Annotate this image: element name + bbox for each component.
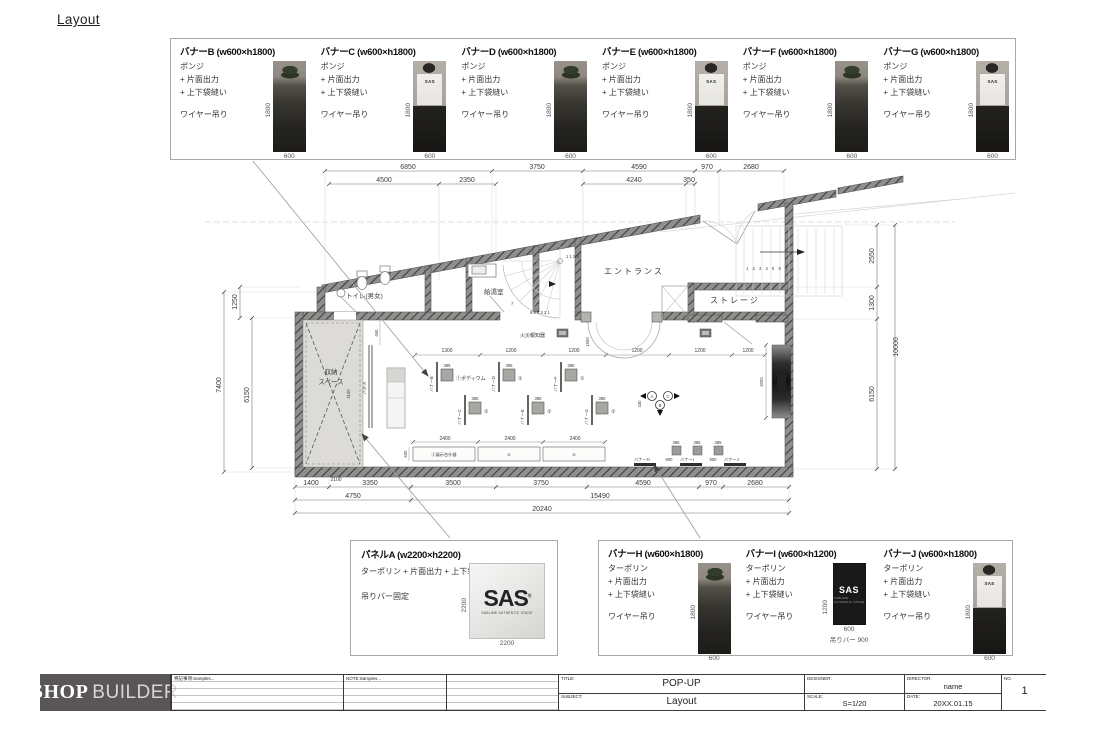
banner-title: バナーE (w600×h1800)	[602, 44, 728, 58]
dim-label: 600	[403, 450, 408, 458]
toilet-label: トイレ(男女)	[346, 291, 383, 300]
banner-photo-tee: SAS	[413, 61, 446, 152]
logo-shop-text: SHOP	[32, 681, 88, 704]
banner-opt: + 片面出力	[602, 74, 687, 87]
banner-photo-cap	[698, 563, 731, 654]
banner-spec-c: バナーC (w600×h1800) ポンジ + 片面出力 + 上下袋縫い ワイヤ…	[312, 39, 453, 159]
banner-photo-tee: SAS	[976, 61, 1009, 152]
banner-title: バナーG (w600×h1800)	[883, 44, 1009, 58]
banner-rail-label: バナーC	[457, 409, 463, 425]
dim-label: 1200	[742, 348, 753, 354]
sheet-number-cell: NO. 1	[1001, 675, 1047, 710]
banner-rail-label: バナーG	[584, 409, 590, 425]
banner-rail-label: バナーE	[520, 409, 526, 425]
shirt-logo-text: SAS	[413, 79, 446, 84]
banner-spec-i: バナーI (w600×h1200) ターポリン + 片面出力 + 上下袋縫い ワ…	[737, 541, 875, 655]
title-block-table: 特記事項:Samples... NOTE:Samples... TITLE: P…	[170, 674, 1046, 711]
dim-label: 385	[673, 440, 681, 445]
dim-label: 1300	[869, 295, 876, 311]
banner-title: バナーI (w600×h1200)	[746, 546, 869, 560]
panel-a-bracket: パネ-A 650	[362, 320, 405, 428]
banner-hang: ワイヤー吊り	[180, 109, 265, 122]
dim-label: 385	[506, 363, 514, 368]
banner-hang: ワイヤー吊り	[461, 109, 546, 122]
banner-spec-g: バナーG (w600×h1800) ポンジ + 片面出力 + 上下袋縫い ワイヤ…	[874, 39, 1015, 159]
empty-cell	[446, 675, 558, 710]
dim-label: 385	[694, 440, 702, 445]
dim-label: 385	[535, 396, 543, 401]
dim-label: 3500	[445, 480, 461, 487]
bottom-banner-spec-box: バナーH (w600×h1800) ターポリン + 片面出力 + 上下袋縫い ワ…	[598, 540, 1013, 656]
banner-opt: + 片面出力	[608, 576, 690, 589]
banner-spec-d: バナーD (w600×h1800) ポンジ + 片面出力 + 上下袋縫い ワイヤ…	[452, 39, 593, 159]
banner-material: ポンジ	[743, 61, 828, 74]
banner-material: ポンジ	[602, 61, 687, 74]
banner-title: バナーF (w600×h1800)	[743, 44, 869, 58]
banner-width-label: 600	[706, 153, 717, 160]
banner-hang: ワイヤー吊り	[602, 109, 687, 122]
dim-label: 430	[637, 400, 642, 408]
dim-label: 6150	[869, 386, 876, 402]
storage-space: 収納 スペース 2100	[303, 320, 363, 467]
display-table-label: ②	[572, 452, 576, 457]
banner-opt: + 片面出力	[321, 74, 406, 87]
banner-material: ターポリン	[746, 563, 822, 576]
banner-hang: ワイヤー吊り	[743, 109, 828, 122]
registered-mark: ®	[528, 593, 531, 599]
dim-label: 2680	[747, 480, 763, 487]
dim-label: 385	[715, 440, 723, 445]
sas-logo-text: SAS	[484, 585, 528, 611]
banner-hij-marks: 385 385 385 バナーH 900 バナーI 900 バナーJ	[634, 440, 746, 466]
banner-rails-podiums: 385 385 385 385 385 385 ①ポディウム ① ① ① ① ①…	[429, 362, 616, 425]
storage-room	[662, 286, 688, 316]
dim-label: 6150	[244, 387, 251, 403]
walls	[295, 176, 903, 477]
banner-spec-h: バナーH (w600×h1800) ターポリン + 片面出力 + 上下袋縫い ワ…	[599, 541, 737, 655]
storage-space-label: 収納	[325, 367, 338, 376]
banner-opt: + 上下袋縫い	[746, 589, 822, 602]
dimensions-right: 2550 1300 10000 6150	[869, 223, 900, 471]
banner-height-label: 1800	[965, 605, 972, 619]
banner-title: バナーB (w600×h1800)	[180, 44, 306, 58]
banner-height-label: 1800	[968, 103, 975, 117]
podium-label: ①	[611, 409, 616, 415]
dimensions-left: 1250 7400 6150	[216, 285, 254, 474]
dim-label: 385	[599, 396, 607, 401]
dim-label: 3750	[533, 480, 549, 487]
banner-opt: + 片面出力	[743, 74, 828, 87]
sheet-number: 1	[1002, 685, 1047, 697]
banner-height-label: 1800	[405, 103, 412, 117]
banner-width-label: 600	[844, 626, 855, 633]
banner-title: バナーH (w600×h1800)	[608, 546, 731, 560]
banner-height-label: 1200	[822, 600, 829, 614]
dim-label: 1200	[505, 348, 516, 354]
banner-material: ポンジ	[461, 61, 546, 74]
dim-label: 350	[683, 177, 695, 184]
dim-label: 7400	[216, 377, 223, 393]
director-label: DIRECTOR:	[907, 676, 932, 681]
panel-height-label: 2200	[461, 598, 468, 612]
banner-opt: + 片面出力	[883, 576, 965, 589]
dim-label: 2100	[346, 389, 351, 399]
drawing-title: POP-UP	[559, 678, 804, 689]
view-marker: A C B 430	[637, 392, 680, 417]
designer-scale-cell: DESIGNER: SCALE: S=1/20	[804, 675, 904, 710]
dim-label: 1250	[232, 294, 239, 310]
panel-a-spec-box: パネルA (w2200×h2200) ターポリン + 片面出力 + 上下袋縫い …	[350, 540, 558, 656]
dim-label: 1200	[631, 348, 642, 354]
designer-label: DESIGNER:	[807, 676, 832, 681]
dimensions-top: 6850 3750 4590 970 2680 4500 2350 4240 3…	[323, 164, 786, 186]
stair-number: 1 1 2 3	[566, 254, 579, 259]
banner-hang: ワイヤー吊り	[321, 109, 406, 122]
banner-width-label: 600	[565, 153, 576, 160]
date-value: 20XX.01.15	[905, 699, 1001, 708]
banner-mark-label: バナーJ	[724, 457, 739, 463]
shirt-logo-text: SAS	[973, 581, 1006, 586]
banner-spec-e: バナーE (w600×h1800) ポンジ + 片面出力 + 上下袋縫い ワイヤ…	[593, 39, 734, 159]
banner-opt: + 片面出力	[180, 74, 265, 87]
dim-label: 2400	[504, 436, 515, 442]
banner-mark-label: バナーI	[680, 457, 694, 463]
sas-banner-text: SAS	[839, 585, 859, 595]
notes-cell: 特記事項:Samples...	[171, 675, 343, 710]
page-title: Layout	[57, 12, 100, 27]
view-label: B	[659, 403, 662, 408]
entrance-label: エントランス	[604, 267, 664, 276]
dim-label: 385	[472, 396, 480, 401]
banner-hang: ワイヤー吊り	[746, 611, 822, 624]
dim-label: 3350	[362, 480, 378, 487]
scale-value: S=1/20	[805, 699, 904, 708]
dim-label: 4590	[631, 164, 647, 171]
shop-builder-logo: SHOP BUILDER	[40, 674, 170, 711]
banner-opt: + 上下袋縫い	[321, 87, 406, 100]
top-banner-spec-box: バナーB (w600×h1800) ポンジ + 片面出力 + 上下袋縫い ワイヤ…	[170, 38, 1016, 160]
banner-hang: ワイヤー吊り	[883, 109, 968, 122]
banner-opt: + 上下袋縫い	[608, 589, 690, 602]
dim-label: 2100	[330, 477, 341, 483]
banner-opt: + 片面出力	[883, 74, 968, 87]
banner-photo-cap	[554, 61, 587, 152]
director-date-cell: DIRECTOR: name DATE: 20XX.01.15	[904, 675, 1001, 710]
banner-spec-f: バナーF (w600×h1800) ポンジ + 片面出力 + 上下袋縫い ワイヤ…	[734, 39, 875, 159]
display-table-label: ②	[507, 452, 511, 457]
no-label: NO.	[1004, 676, 1012, 681]
dim-label: 3750	[529, 164, 545, 171]
director-value: name	[905, 682, 1001, 691]
podium-label: ①	[580, 376, 585, 382]
banner-photo-tee: SAS	[695, 61, 728, 152]
panel-a-plan-label: パネ-A	[362, 382, 368, 395]
banner-spec-b: バナーB (w600×h1800) ポンジ + 片面出力 + 上下袋縫い ワイヤ…	[171, 39, 312, 159]
podium-label: ①ポディウム	[456, 375, 486, 382]
dim-label: 2680	[743, 164, 759, 171]
dim-label: 900	[710, 457, 718, 462]
dim-label: 20240	[532, 506, 552, 513]
dim-label: 15490	[590, 493, 610, 500]
banner-mark-label: バナーH	[634, 457, 650, 463]
banner-rail-label: バナーB	[429, 376, 435, 392]
entrance-arch: 1500	[581, 312, 662, 358]
banner-material: ポンジ	[180, 61, 265, 74]
banner-title: バナーJ (w600×h1800)	[883, 546, 1006, 560]
banner-spec-j: バナーJ (w600×h1800) ターポリン + 片面出力 + 上下袋縫い ワ…	[874, 541, 1012, 655]
title-block: SHOP BUILDER 特記事項:Samples... NOTE:Sample…	[40, 672, 1046, 713]
banner-rail-label: バナーF	[553, 376, 559, 392]
logo-builder-text: BUILDER	[92, 682, 178, 704]
banner-opt: + 上下袋縫い	[180, 87, 265, 100]
banner-opt: + 上下袋縫い	[883, 87, 968, 100]
dim-label: 385	[444, 363, 452, 368]
stair-number: 7	[511, 301, 514, 306]
stair-number: 1 2 3 4 5 6 7	[746, 266, 789, 271]
dim-label: 10000	[893, 337, 900, 357]
dim-label: 1300	[441, 348, 452, 354]
panel-width-label: 2200	[500, 640, 514, 647]
banner-height-label: 1800	[265, 103, 272, 117]
storage-space-label: スペース	[318, 378, 343, 386]
dimensions-bottom: 1400 3350 3500 3750 4590 970 2680 2100 4…	[293, 477, 791, 515]
banner-material: ターポリン	[883, 563, 965, 576]
banner-photo-cap	[835, 61, 868, 152]
hang-bar-label: 吊りバー 900	[830, 634, 869, 644]
banner-height-label: 1800	[827, 103, 834, 117]
fire-alarm: 火災報知器	[520, 329, 711, 339]
banner-height-label: 1800	[546, 103, 553, 117]
banner-material: ポンジ	[321, 61, 406, 74]
banner-width-label: 600	[846, 153, 857, 160]
banner-width-label: 600	[987, 153, 998, 160]
banner-height-label: 1800	[687, 103, 694, 117]
drawing-subject: Layout	[559, 696, 804, 707]
banner-photo-cap	[273, 61, 306, 152]
banner-hang: ワイヤー吊り	[883, 611, 965, 624]
banner-width-label: 600	[284, 153, 295, 160]
dim-label: 1500	[585, 337, 590, 347]
view-label: A	[651, 394, 654, 399]
stair-number: 6 5 4 3 2 1	[530, 310, 550, 315]
dim-label: 1200	[694, 348, 705, 354]
banner-width-label: 600	[424, 153, 435, 160]
dim-label: 4750	[345, 493, 361, 500]
dim-label: 4500	[376, 177, 392, 184]
display-tables: 2400 2400 2400 ②展示台什器 ② ② 600	[403, 436, 607, 461]
banner-title: バナーD (w600×h1800)	[461, 44, 587, 58]
banner-material: ポンジ	[883, 61, 968, 74]
shelf-dimensions: 1300 1200 1200 1200 1200 1200	[413, 348, 767, 357]
banner-opt: + 上下袋縫い	[743, 87, 828, 100]
banner-opt: + 片面出力	[461, 74, 546, 87]
podium-label: ①	[484, 409, 489, 415]
dim-label: 2400	[439, 436, 450, 442]
shirt-logo-text: SAS	[976, 79, 1009, 84]
storage-label: ストレージ	[710, 296, 760, 305]
dim-label: 4000	[759, 377, 764, 387]
dim-label: 4590	[635, 480, 651, 487]
view-label: C	[666, 394, 669, 399]
banner-opt: + 上下袋縫い	[461, 87, 546, 100]
dim-label: 1200	[568, 348, 579, 354]
dim-label: 2550	[869, 248, 876, 264]
banner-photo-tee: SAS	[973, 563, 1006, 654]
display-table-label: ②展示台什器	[431, 451, 457, 458]
wardrobe-fixture: 4000	[759, 343, 791, 420]
dim-label: 970	[705, 480, 717, 487]
dim-label: 1400	[303, 480, 319, 487]
banner-rail-label: バナーD	[491, 376, 497, 392]
banner-opt: + 上下袋縫い	[883, 589, 965, 602]
banner-width-label: 600	[984, 655, 995, 662]
dim-label: 4240	[626, 177, 642, 184]
dim-label: 2400	[569, 436, 580, 442]
banner-material: ターポリン	[608, 563, 690, 576]
banner-photo-sas: SAS SUBLIME AUTHENTIC STAGE	[833, 563, 866, 625]
notes-label: 特記事項:Samples...	[174, 676, 215, 682]
sas-logo: SAS® SUBLIME AUTHENTIC STAGE	[469, 563, 545, 639]
kitchen-label: 給湯室	[484, 287, 504, 296]
banner-width-label: 600	[709, 655, 720, 662]
sas-logo-subtext: SUBLIME AUTHENTIC STAGE	[481, 611, 532, 615]
note-label: NOTE:Samples...	[346, 676, 381, 681]
fire-alarm-label: 火災報知器	[520, 332, 545, 339]
floor-plan: 6850 3750 4590 970 2680 4500 2350 4240 3…	[200, 160, 1020, 540]
dim-label: 900	[666, 457, 674, 462]
dim-label: 2350	[459, 177, 475, 184]
banner-title: バナーC (w600×h1800)	[321, 44, 447, 58]
podium-label: ①	[547, 409, 552, 415]
shirt-logo-text: SAS	[695, 79, 728, 84]
panel-title: パネルA (w2200×h2200)	[361, 547, 547, 561]
dim-label: 650	[374, 329, 379, 337]
banner-hang: ワイヤー吊り	[608, 611, 690, 624]
banner-opt: + 片面出力	[746, 576, 822, 589]
dim-label: 6850	[400, 164, 416, 171]
note-cell: NOTE:Samples...	[343, 675, 446, 710]
dim-label: 385	[568, 363, 576, 368]
sas-banner-subtext: SUBLIME AUTHENTIC STAGE	[834, 596, 865, 604]
podium-label: ①	[518, 376, 523, 382]
banner-height-label: 1800	[690, 605, 697, 619]
title-cell: TITLE: POP-UP SUBJECT: Layout	[558, 675, 804, 710]
banner-opt: + 上下袋縫い	[602, 87, 687, 100]
dim-label: 970	[701, 164, 713, 171]
